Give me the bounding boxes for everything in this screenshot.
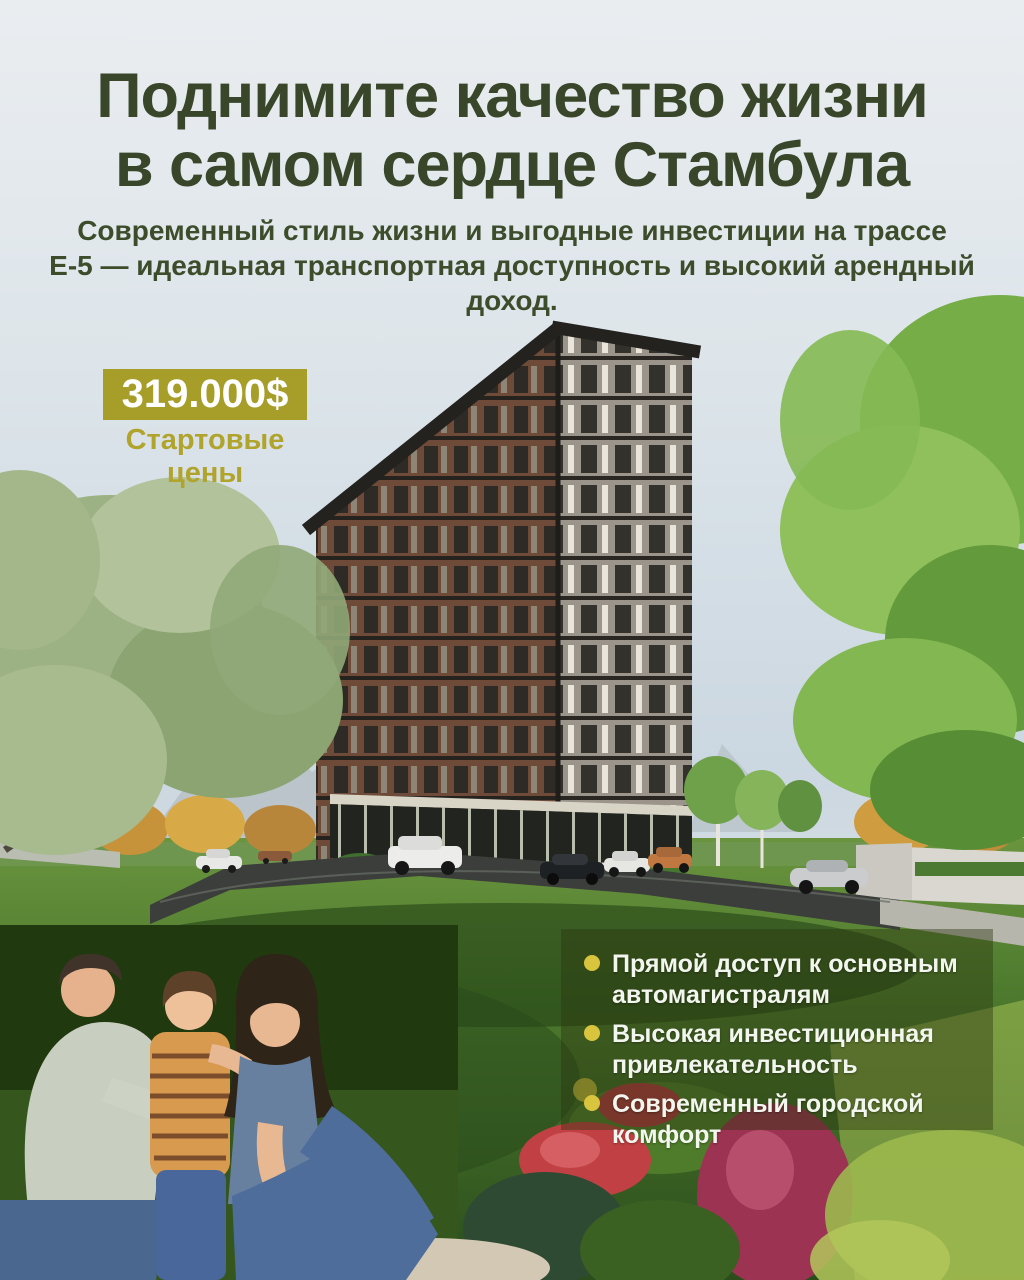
feature-text: Современный городской комфорт (612, 1089, 987, 1151)
feature-item: Высокая инвестиционная привлекательность (584, 1019, 987, 1081)
subtitle: Современный стиль жизни и выгодные инвес… (0, 213, 1024, 318)
feature-item: Современный городской комфорт (584, 1089, 987, 1151)
price-badge: 319.000$ (103, 369, 307, 420)
headline-line-2: в самом сердце Стамбула (0, 131, 1024, 200)
white-wall (856, 843, 1024, 905)
feature-item: Прямой доступ к основным автомагистралям (584, 949, 987, 1011)
building-illustration (306, 327, 700, 885)
subtitle-line-1: Современный стиль жизни и выгодные инвес… (0, 213, 1024, 248)
bullet-dot-icon (584, 955, 600, 971)
features-panel: Прямой доступ к основным автомагистралям… (561, 929, 993, 1130)
subtitle-line-2: Е-5 — идеальная транспортная доступность… (0, 248, 1024, 318)
feature-text: Прямой доступ к основным автомагистралям (612, 949, 987, 1011)
headline: Поднимите качество жизни в самом сердце … (0, 62, 1024, 200)
bullet-dot-icon (584, 1025, 600, 1041)
bullet-dot-icon (584, 1095, 600, 1111)
price-caption: Стартовые цены (93, 424, 317, 490)
tree-right-green (780, 295, 1024, 850)
headline-line-1: Поднимите качество жизни (0, 62, 1024, 131)
feature-text: Высокая инвестиционная привлекательность (612, 1019, 987, 1081)
real-estate-ad-poster: Поднимите качество жизни в самом сердце … (0, 0, 1024, 1280)
